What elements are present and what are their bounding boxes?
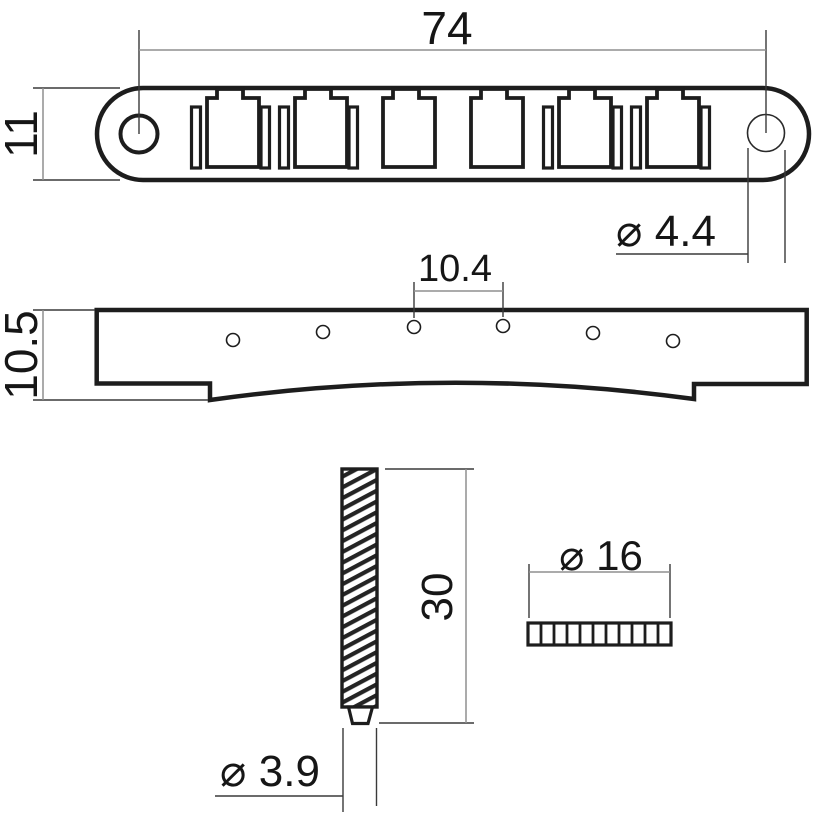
dimension-hole-spacing: 10.4 [414, 248, 503, 318]
dimension-thumbwheel-diameter: ⌀ 16 [529, 532, 670, 618]
dim-label-stud-tip: ⌀ 3.9 [220, 747, 320, 796]
saddle-slot [471, 89, 523, 167]
dimension-stud-tip-diameter: ⌀ 3.9 [215, 728, 377, 812]
bridge-drawing: 74 11 ⌀ 4.4 10.4 [0, 0, 815, 815]
saddle-slot [383, 89, 435, 167]
dimension-stud-length: 30 [379, 469, 474, 723]
top-view: 74 11 ⌀ 4.4 [0, 2, 809, 263]
dim-label-post-hole: ⌀ 4.4 [616, 207, 716, 256]
threaded-shaft [342, 469, 377, 707]
dim-label-length: 74 [421, 2, 472, 54]
dim-label-thumbwheel: ⌀ 16 [559, 532, 643, 579]
dim-label-width: 11 [0, 110, 47, 158]
technical-drawing-page: 74 11 ⌀ 4.4 10.4 [0, 0, 815, 815]
stud-tip [349, 707, 373, 724]
dim-label-stud-length: 30 [413, 573, 462, 622]
thumbwheel-body [528, 623, 671, 645]
thumbwheel-view: ⌀ 16 [528, 532, 671, 645]
bridge-side-outline [97, 310, 807, 400]
dim-label-hole-spacing: 10.4 [418, 248, 492, 290]
dim-label-side-height: 10.5 [0, 310, 47, 400]
side-view: 10.4 10.5 [0, 248, 807, 400]
stud-view: 30 ⌀ 3.9 [215, 469, 474, 812]
